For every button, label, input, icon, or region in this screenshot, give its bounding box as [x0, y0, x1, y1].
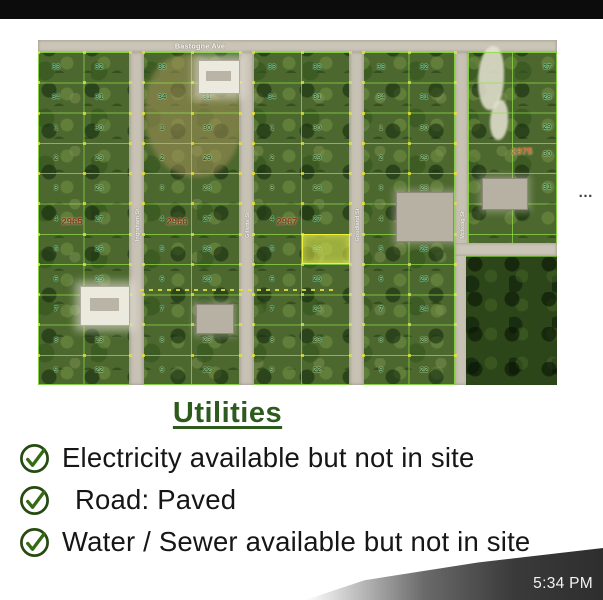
- dimension-marker: [83, 81, 86, 84]
- lot-number: 30: [203, 124, 211, 132]
- woodland-area: [466, 256, 557, 385]
- dimension-marker: [252, 263, 255, 266]
- dimension-marker: [191, 263, 194, 266]
- dimension-marker: [38, 202, 40, 205]
- lot-number: 32: [420, 63, 428, 71]
- dimension-marker: [454, 233, 457, 236]
- dimension-marker: [252, 112, 255, 115]
- dimension-marker: [362, 142, 365, 145]
- dimension-marker: [38, 142, 40, 145]
- lot-number: 5: [54, 245, 58, 253]
- dimension-marker: [408, 323, 411, 326]
- dimension-marker: [454, 112, 457, 115]
- lot-number: 6: [54, 275, 58, 283]
- house-marker: [80, 286, 130, 326]
- lot-number: 33: [158, 63, 166, 71]
- dimension-marker: [239, 354, 242, 357]
- dimension-marker: [83, 112, 86, 115]
- street-label: Bastogne Ave: [175, 42, 225, 50]
- lot-number: 9: [160, 366, 164, 374]
- dimension-marker: [191, 233, 194, 236]
- dimension-marker: [362, 112, 365, 115]
- lot-number: 1: [379, 124, 383, 132]
- dimension-marker: [142, 172, 145, 175]
- dimension-marker: [38, 112, 40, 115]
- house-marker: [196, 304, 234, 334]
- lot-number: 23: [420, 335, 428, 343]
- dimension-marker: [129, 81, 132, 84]
- dimension-marker: [142, 202, 145, 205]
- dimension-marker: [454, 202, 457, 205]
- lot-number: 26: [95, 245, 103, 253]
- lot-number: 2: [270, 154, 274, 162]
- dimension-marker: [349, 51, 352, 54]
- dimension-marker: [129, 263, 132, 266]
- dimension-marker: [142, 81, 145, 84]
- lot-number: 22: [203, 366, 211, 374]
- top-black-bar: [0, 0, 603, 19]
- lot-number: 9: [270, 366, 274, 374]
- lot-number: 7: [270, 305, 274, 313]
- utility-item-electricity: Electricity available but not in site: [18, 437, 603, 479]
- dimension-marker: [239, 293, 242, 296]
- dimension-marker: [349, 142, 352, 145]
- utility-item-label: Road: Paved: [62, 484, 236, 516]
- dimension-marker: [142, 233, 145, 236]
- dimension-marker: [191, 142, 194, 145]
- lot-number: 6: [379, 275, 383, 283]
- lot-number: 1: [270, 124, 274, 132]
- dimension-marker: [129, 354, 132, 357]
- dimension-marker: [129, 142, 132, 145]
- dimension-marker: [362, 233, 365, 236]
- lot-number: 23: [203, 335, 211, 343]
- dimension-marker: [408, 51, 411, 54]
- street-label: Gillette St: [243, 212, 249, 238]
- dimension-marker: [83, 142, 86, 145]
- dimension-marker: [129, 51, 132, 54]
- dimension-marker: [239, 172, 242, 175]
- dimension-marker: [301, 293, 304, 296]
- dimension-marker: [301, 202, 304, 205]
- lot-number: 29: [543, 123, 551, 131]
- lot-number: 29: [420, 154, 428, 162]
- dimension-marker: [301, 112, 304, 115]
- dimension-marker: [301, 51, 304, 54]
- road: [38, 40, 557, 52]
- dimension-marker: [408, 263, 411, 266]
- dimension-marker: [239, 51, 242, 54]
- lot-number: 28: [313, 184, 321, 192]
- dimension-marker: [454, 263, 457, 266]
- block-number-label: 2966: [166, 216, 187, 226]
- dimension-marker: [239, 263, 242, 266]
- lot-number: 2: [54, 154, 58, 162]
- lot-number: 6: [270, 275, 274, 283]
- dimension-marker: [362, 323, 365, 326]
- dimension-marker: [38, 233, 40, 236]
- lot-number: 31: [203, 93, 211, 101]
- lot-number: 27: [203, 214, 211, 222]
- lot-number: 31: [95, 93, 103, 101]
- lot-number: 28: [543, 93, 551, 101]
- lot-number: 22: [420, 366, 428, 374]
- block-number-label: 2975: [511, 147, 532, 157]
- lot-number: 29: [203, 154, 211, 162]
- dimension-marker: [362, 81, 365, 84]
- lot-number: 29: [313, 154, 321, 162]
- lot-number: 34: [268, 93, 276, 101]
- lot-number: 30: [95, 124, 103, 132]
- lot-number: 27: [95, 214, 103, 222]
- dimension-marker: [301, 172, 304, 175]
- lot-number: 25: [95, 275, 103, 283]
- lot-number: 32: [95, 63, 103, 71]
- dimension-marker: [454, 51, 457, 54]
- lot-number: 33: [377, 63, 385, 71]
- dimension-marker: [83, 172, 86, 175]
- street-label: Goodland St: [353, 208, 359, 241]
- lot-number: 4: [379, 214, 383, 222]
- lot-number: 23: [95, 335, 103, 343]
- parcel-block: [143, 52, 240, 385]
- timestamp: 5:34 PM: [533, 575, 593, 593]
- dimension-marker: [38, 172, 40, 175]
- dimension-marker: [129, 172, 132, 175]
- parcel-block: [253, 52, 350, 385]
- lot-number: 30: [420, 124, 428, 132]
- lot-number: 7: [160, 305, 164, 313]
- lot-number: 26: [203, 245, 211, 253]
- lot-number: 28: [95, 184, 103, 192]
- lot-number: 31: [543, 183, 551, 191]
- highlighted-lot: [302, 234, 351, 264]
- dimension-marker: [129, 112, 132, 115]
- lot-number: 1: [54, 124, 58, 132]
- dimension-marker: [252, 81, 255, 84]
- dimension-marker: [191, 323, 194, 326]
- dimension-marker: [349, 202, 352, 205]
- utility-item-label: Electricity available but not in site: [62, 442, 474, 474]
- dimension-marker: [191, 354, 194, 357]
- parcel-block: [38, 52, 130, 385]
- dimension-marker: [191, 51, 194, 54]
- lot-number: 5: [270, 245, 274, 253]
- lot-number: 28: [203, 184, 211, 192]
- dimension-marker: [454, 354, 457, 357]
- utility-item-road: Road: Paved: [18, 479, 603, 521]
- survey-dash-line: [140, 289, 336, 291]
- dimension-marker: [362, 51, 365, 54]
- utility-item-water-sewer: Water / Sewer available but not in site: [18, 521, 603, 563]
- lot-number: 30: [543, 150, 551, 158]
- lot-number: 22: [313, 366, 321, 374]
- lot-number: 9: [379, 366, 383, 374]
- lot-number: 29: [95, 154, 103, 162]
- lot-number: 3: [379, 184, 383, 192]
- dimension-marker: [362, 172, 365, 175]
- lot-number: 8: [54, 335, 58, 343]
- dimension-marker: [142, 354, 145, 357]
- lot-number: 5: [379, 245, 383, 253]
- dimension-marker: [191, 172, 194, 175]
- lot-number: 9: [54, 366, 58, 374]
- lot-number: 34: [377, 93, 385, 101]
- dimension-marker: [454, 293, 457, 296]
- road: [455, 243, 557, 256]
- lot-number: 3: [160, 184, 164, 192]
- lot-number: 27: [543, 63, 551, 71]
- dimension-marker: [191, 81, 194, 84]
- lot-number: 27: [313, 214, 321, 222]
- lot-number: 26: [420, 245, 428, 253]
- lot-number: 24: [313, 305, 321, 313]
- dimension-marker: [129, 202, 132, 205]
- street-label: Mckeag St: [458, 211, 464, 239]
- lot-number: 3: [54, 184, 58, 192]
- dimension-marker: [142, 323, 145, 326]
- check-circle-icon: [18, 484, 51, 517]
- dimension-marker: [38, 293, 40, 296]
- utility-item-label: Water / Sewer available but not in site: [62, 526, 530, 558]
- lot-number: 6: [160, 275, 164, 283]
- lot-number: 34: [158, 93, 166, 101]
- lot-number: 25: [420, 275, 428, 283]
- lot-number: 5: [160, 245, 164, 253]
- block-number-label: 2965: [61, 216, 82, 226]
- dimension-marker: [349, 354, 352, 357]
- utilities-section: Utilities Electricity available but not …: [0, 397, 603, 563]
- lot-number: 8: [379, 335, 383, 343]
- house-marker: [198, 60, 240, 94]
- dimension-marker: [349, 293, 352, 296]
- dimension-marker: [142, 112, 145, 115]
- parcel-map: Bastogne AveIngraham StGillette StGoodla…: [38, 40, 557, 385]
- check-circle-icon: [18, 526, 51, 559]
- dimension-marker: [408, 293, 411, 296]
- dimension-marker: [83, 51, 86, 54]
- dimension-marker: [142, 263, 145, 266]
- lot-number: 7: [54, 305, 58, 313]
- utilities-heading: Utilities: [0, 397, 455, 430]
- dimension-marker: [142, 51, 145, 54]
- dimension-marker: [408, 142, 411, 145]
- dimension-marker: [191, 202, 194, 205]
- dimension-marker: [349, 323, 352, 326]
- dimension-marker: [83, 202, 86, 205]
- dimension-marker: [454, 323, 457, 326]
- dimension-marker: [301, 81, 304, 84]
- dimension-marker: [349, 172, 352, 175]
- dimension-marker: [191, 293, 194, 296]
- house-marker: [396, 192, 454, 242]
- lot-number: 34: [52, 93, 60, 101]
- utility-list: Electricity available but not in site Ro…: [0, 437, 603, 563]
- lot-number: 7: [379, 305, 383, 313]
- dimension-marker: [362, 263, 365, 266]
- dimension-marker: [38, 81, 40, 84]
- lot-number: 22: [95, 366, 103, 374]
- lot-number: 1: [160, 124, 164, 132]
- street-label: Ingraham St: [133, 209, 139, 241]
- dimension-marker: [252, 233, 255, 236]
- dimension-marker: [252, 51, 255, 54]
- dimension-marker: [301, 142, 304, 145]
- dimension-marker: [38, 263, 40, 266]
- dimension-marker: [252, 142, 255, 145]
- lot-number: 33: [52, 63, 60, 71]
- dimension-marker: [239, 233, 242, 236]
- dimension-marker: [239, 142, 242, 145]
- dimension-marker: [83, 233, 86, 236]
- dimension-marker: [83, 263, 86, 266]
- lot-number: 3: [270, 184, 274, 192]
- dimension-marker: [142, 293, 145, 296]
- house-marker: [482, 178, 528, 210]
- dimension-marker: [129, 233, 132, 236]
- dimension-marker: [252, 293, 255, 296]
- dimension-marker: [454, 172, 457, 175]
- dimension-marker: [301, 323, 304, 326]
- lot-number: 8: [270, 335, 274, 343]
- lot-number: 2: [160, 154, 164, 162]
- dimension-marker: [454, 81, 457, 84]
- lot-number: 23: [313, 335, 321, 343]
- dimension-marker: [252, 172, 255, 175]
- dimension-marker: [408, 81, 411, 84]
- dimension-marker: [454, 142, 457, 145]
- block-number-label: 2967: [276, 216, 297, 226]
- lot-number: 30: [313, 124, 321, 132]
- dimension-marker: [408, 354, 411, 357]
- ellipsis-indicator: …: [578, 184, 595, 201]
- dimension-marker: [83, 354, 86, 357]
- dimension-marker: [301, 354, 304, 357]
- lot-number: 33: [268, 63, 276, 71]
- dimension-marker: [239, 112, 242, 115]
- dimension-marker: [362, 293, 365, 296]
- lot-number: 4: [160, 214, 164, 222]
- dimension-marker: [362, 202, 365, 205]
- lot-number: 32: [313, 63, 321, 71]
- lot-number: 31: [420, 93, 428, 101]
- dimension-marker: [349, 112, 352, 115]
- lot-number: 4: [54, 214, 58, 222]
- dimension-marker: [239, 323, 242, 326]
- dimension-marker: [408, 112, 411, 115]
- lot-number: 8: [160, 335, 164, 343]
- dimension-marker: [349, 81, 352, 84]
- lot-number: 25: [203, 275, 211, 283]
- dimension-marker: [362, 354, 365, 357]
- check-circle-icon: [18, 442, 51, 475]
- dimension-marker: [408, 172, 411, 175]
- lot-number: 2: [379, 154, 383, 162]
- dimension-marker: [38, 323, 40, 326]
- dimension-marker: [38, 354, 40, 357]
- lot-number: 24: [420, 305, 428, 313]
- dimension-marker: [142, 142, 145, 145]
- dimension-marker: [252, 202, 255, 205]
- dimension-marker: [239, 202, 242, 205]
- dimension-marker: [252, 323, 255, 326]
- dimension-marker: [191, 112, 194, 115]
- dimension-marker: [252, 354, 255, 357]
- dimension-marker: [38, 51, 40, 54]
- lot-number: 31: [313, 93, 321, 101]
- lot-number: 25: [313, 275, 321, 283]
- lot-number: 4: [270, 214, 274, 222]
